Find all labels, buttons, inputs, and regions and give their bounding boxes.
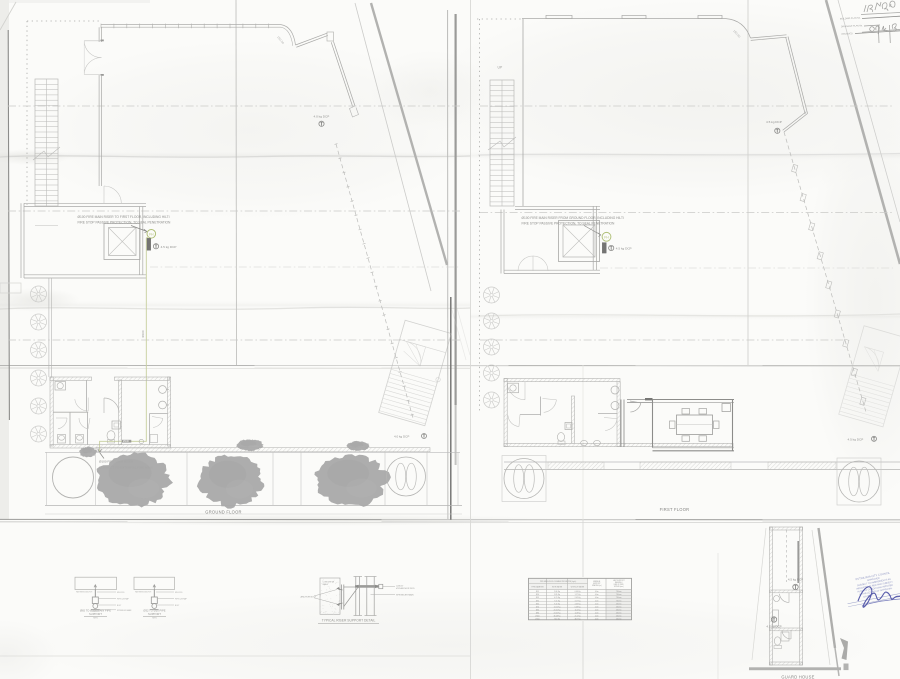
svg-text:450mm: 450mm (616, 606, 622, 608)
svg-text:450mm: 450mm (616, 612, 622, 614)
svg-text:21.2 Kg: 21.2 Kg (575, 616, 581, 618)
svg-text:SUPPORT: SUPPORT (593, 583, 601, 585)
svg-text:4.5 kg DCP: 4.5 kg DCP (161, 245, 177, 249)
svg-text:Ø20: Ø20 (536, 594, 539, 596)
svg-text:Ø100 FIRE MAIN RISER TO FIRST: Ø100 FIRE MAIN RISER TO FIRST FLOOR, INC… (78, 215, 170, 219)
svg-text:450mm: 450mm (616, 619, 622, 621)
svg-text:4.0m: 4.0m (595, 619, 599, 621)
svg-text:4.5 kg DCP: 4.5 kg DCP (616, 247, 632, 251)
svg-text:9.40 Kg: 9.40 Kg (554, 603, 560, 605)
svg-text:38.7 Kg: 38.7 Kg (575, 619, 581, 621)
svg-text:14.8 Kg: 14.8 Kg (575, 612, 581, 614)
svg-text:PIPE U-STRAP: PIPE U-STRAP (117, 598, 130, 601)
svg-text:Ø65 TO Ø100 MAIN PIPE: Ø65 TO Ø100 MAIN PIPE (80, 609, 111, 613)
svg-text:4.5 kg DCP: 4.5 kg DCP (766, 625, 781, 629)
svg-text:TYPICAL RISER SUPPORT DETAIL: TYPICAL RISER SUPPORT DETAIL (322, 618, 376, 622)
svg-text:NTS: NTS (93, 618, 98, 620)
svg-text:SPRINKLER MAIN: SPRINKLER MAIN (396, 593, 414, 596)
svg-text:Ø25: Ø25 (536, 597, 539, 599)
svg-text:WITHIN (mm): WITHIN (mm) (614, 586, 624, 588)
svg-text:3.17 Kg: 3.17 Kg (575, 600, 581, 602)
svg-text:NTS: NTS (152, 618, 157, 620)
svg-text:FH: FH (149, 232, 154, 236)
svg-text:BOLT: BOLT (175, 605, 179, 607)
svg-text:4.5 kg DCP: 4.5 kg DCP (788, 577, 803, 581)
svg-text:FIRE STOP PASSIVE PROTECTION,: FIRE STOP PASSIVE PROTECTION, TO SEAL PE… (522, 221, 616, 225)
svg-text:4.0m: 4.0m (595, 612, 599, 614)
svg-text:FIRST FLOOR: FIRST FLOOR (660, 507, 690, 512)
svg-text:4.0m: 4.0m (595, 603, 599, 605)
svg-text:GROUND FLOOR: GROUND FLOOR (205, 510, 241, 515)
svg-text:4.5 kg DCP: 4.5 kg DCP (766, 120, 782, 124)
svg-text:750mm: 750mm (616, 591, 622, 593)
svg-text:Ø32: Ø32 (536, 600, 539, 602)
svg-text:450mm: 450mm (616, 603, 622, 605)
svg-text:4.0m: 4.0m (595, 616, 599, 618)
svg-text:Ø100: Ø100 (141, 330, 145, 337)
svg-text:4.5 kg DCP: 4.5 kg DCP (848, 438, 864, 442)
svg-text:2.06 Kg: 2.06 Kg (554, 591, 560, 593)
svg-text:SUPPORT: SUPPORT (148, 612, 161, 616)
svg-text:4.70 Kg: 4.70 Kg (554, 597, 560, 599)
svg-text:4.63 Kg: 4.63 Kg (575, 603, 581, 605)
svg-text:BOLT: BOLT (117, 605, 121, 607)
svg-text:4.0m: 4.0m (595, 600, 599, 602)
svg-text:Ø10 ROD: Ø10 ROD (117, 592, 125, 594)
svg-text:Ø150: Ø150 (535, 619, 539, 621)
svg-text:Ø10 ROD: Ø10 ROD (175, 592, 183, 594)
svg-text:750mm: 750mm (616, 600, 622, 602)
svg-text:FIRE STOP PASSIVE PROTECTION,: FIRE STOP PASSIVE PROTECTION, TO SEAL PE… (78, 221, 172, 225)
svg-text:4.0m: 4.0m (595, 609, 599, 611)
svg-text:Ø100: Ø100 (123, 440, 130, 443)
svg-text:Ø80: Ø80 (536, 612, 539, 614)
svg-text:MINIMUM: MINIMUM (593, 581, 601, 583)
svg-text:4.0 kg DCP: 4.0 kg DCP (394, 435, 409, 439)
svg-text:24.02 Kg: 24.02 Kg (554, 612, 561, 614)
svg-text:6.68 Kg: 6.68 Kg (575, 606, 581, 608)
svg-text:4.0m: 4.0m (595, 606, 599, 608)
svg-text:PIPE U-STRAP: PIPE U-STRAP (175, 598, 188, 601)
svg-text:4.0m: 4.0m (595, 591, 599, 593)
svg-text:END OF PIPE: END OF PIPE (614, 584, 624, 586)
svg-text:SPRINKLER MAIN: SPRINKLER MAIN (117, 609, 132, 612)
svg-text:76.8 Kg: 76.8 Kg (554, 619, 560, 621)
svg-text:Ø40: Ø40 (536, 603, 539, 605)
svg-text:450mm: 450mm (616, 616, 622, 618)
svg-text:2.85 Kg: 2.85 Kg (554, 594, 560, 596)
svg-text:WALL: WALL (323, 583, 329, 586)
svg-text:2.02 Kg: 2.02 Kg (575, 597, 581, 599)
svg-text:20.01 Kg: 20.01 Kg (554, 609, 561, 611)
svg-text:SUPPORT: SUPPORT (89, 612, 102, 616)
svg-text:10.4 Kg: 10.4 Kg (575, 609, 581, 611)
svg-text:750mm: 750mm (616, 597, 622, 599)
svg-text:4.0 kg DCP: 4.0 kg DCP (314, 115, 330, 119)
svg-text:4.0m: 4.0m (595, 594, 599, 596)
svg-text:Ø65: Ø65 (536, 609, 539, 611)
svg-text:4.0m: 4.0m (595, 597, 599, 599)
svg-text:13.10 Kg: 13.10 Kg (554, 606, 561, 608)
svg-text:GUARD HOUSE: GUARD HOUSE (781, 674, 814, 679)
svg-text:450mm: 450mm (616, 609, 622, 611)
svg-text:7.16 Kg: 7.16 Kg (554, 600, 560, 602)
svg-text:FH: FH (604, 235, 609, 239)
svg-text:Ø32 TO Ø50 PIPE: Ø32 TO Ø50 PIPE (143, 609, 165, 613)
svg-text:0.46 Kg: 0.46 Kg (575, 591, 581, 593)
svg-text:Ø100 FIRE MAIN RISER FROM GROU: Ø100 FIRE MAIN RISER FROM GROUND FLOOR, … (522, 216, 624, 220)
svg-text:1.17 Kg: 1.17 Kg (575, 594, 581, 596)
svg-text:Ø100: Ø100 (535, 616, 539, 618)
svg-text:750mm: 750mm (616, 594, 622, 596)
svg-text:UP: UP (498, 66, 503, 70)
svg-text:Ø50: Ø50 (536, 606, 539, 608)
svg-text:Ø15: Ø15 (536, 591, 539, 593)
svg-text:36.08 Kg: 36.08 Kg (554, 616, 561, 618)
svg-text:Ø12 ANCHOR ROD: Ø12 ANCHOR ROD (396, 587, 415, 590)
